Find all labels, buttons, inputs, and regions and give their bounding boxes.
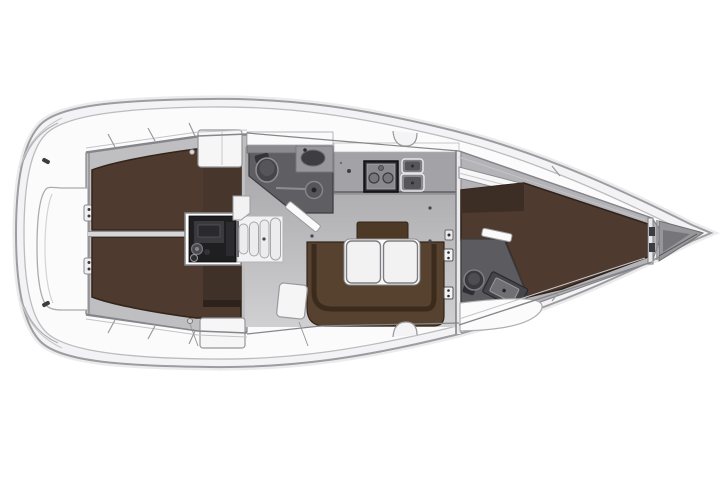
aft-cabin-starboard-side-edge <box>203 300 241 307</box>
aft-head-sink <box>296 146 333 172</box>
floor-dot-4 <box>428 239 431 242</box>
galley-sink-small <box>402 159 423 173</box>
galley-fitting <box>340 162 342 164</box>
galley-sink-large <box>401 174 424 191</box>
engine-head <box>198 225 220 237</box>
engine-cap <box>204 249 210 255</box>
engine-filter <box>191 255 198 262</box>
galley-top-band <box>334 143 459 152</box>
floorplan-drawing <box>0 0 720 480</box>
bow-bulkhead <box>648 218 653 264</box>
yacht-floorplan-canvas <box>0 0 720 480</box>
engine-belt <box>226 222 234 256</box>
saloon-table <box>344 239 420 285</box>
bow-fitting-upper <box>649 227 655 236</box>
galley-stove <box>364 161 398 192</box>
reading-light-port <box>190 150 195 155</box>
reading-light-starboard <box>188 319 193 324</box>
galley <box>334 143 459 194</box>
engine-pulley-hub <box>195 247 199 251</box>
step-1 <box>239 224 248 254</box>
step-4 <box>271 218 281 260</box>
bulkhead-hinge-upper <box>444 249 453 261</box>
bow-fitting-lower <box>649 243 655 252</box>
engine-compartment <box>185 213 241 265</box>
floor-dot-1 <box>262 237 265 240</box>
galley-faucet <box>347 169 351 173</box>
floor-dot-3 <box>428 206 431 209</box>
bulkhead-latch <box>445 230 453 240</box>
nav-seat <box>276 283 307 320</box>
floor-dot-2 <box>310 234 313 237</box>
bulkhead-hinge-lower <box>444 287 453 299</box>
step-2 <box>250 222 259 256</box>
